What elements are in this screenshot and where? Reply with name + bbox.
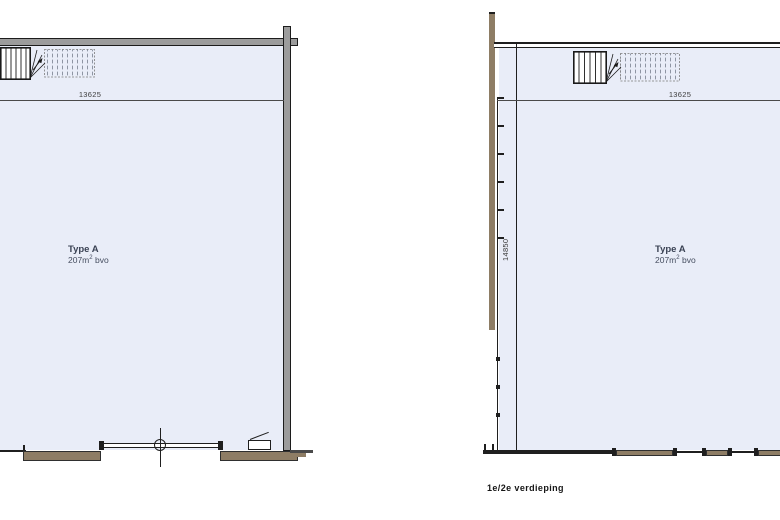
panel-joint-dot — [496, 357, 500, 361]
height-dimension: 14850 — [502, 228, 515, 272]
facade-panel — [706, 450, 728, 456]
unit-type-label: Type A 207m2 bvo — [68, 244, 109, 266]
unit-area-label: 207m2 bvo — [68, 255, 109, 265]
bottom-wall-segment — [483, 450, 613, 454]
left-wall-line — [497, 97, 498, 450]
unit-type-title: Type A — [68, 244, 109, 255]
height-dimension-line — [516, 43, 517, 450]
facade-panel — [23, 451, 101, 461]
unit-type-title: Type A — [655, 244, 696, 255]
top-wall — [0, 38, 298, 46]
staircase-icon — [573, 51, 681, 84]
panel-joint-dot — [496, 385, 500, 389]
left-facade-strip — [489, 14, 495, 330]
panel-joint-tick — [497, 125, 504, 127]
right-wall — [283, 26, 291, 451]
facade-panel — [758, 450, 780, 456]
facade-panel — [616, 450, 673, 456]
facade-panel — [220, 451, 298, 461]
panel-joint-tick — [497, 97, 504, 99]
panel-joint-tick — [497, 153, 504, 155]
panel-joint-tick — [497, 209, 504, 211]
bottom-wall-segment — [677, 451, 703, 453]
width-dimension: 13625 — [650, 91, 710, 99]
width-dimension-line — [497, 100, 780, 101]
floor-area — [0, 46, 284, 450]
panel-joint-dot — [496, 413, 500, 417]
floorplan-caption: 1e/2e verdieping — [487, 483, 564, 493]
entrance-door-leaf — [248, 440, 271, 450]
width-dimension: 13625 — [60, 91, 120, 99]
floor-area — [499, 47, 780, 450]
door-centerline-marker — [154, 439, 166, 451]
unit-type-label: Type A 207m2 bvo — [655, 244, 696, 266]
floorplan-canvas: 13625 Type A 207m2 bvo — [0, 0, 780, 520]
panel-joint-tick — [497, 181, 504, 183]
top-wall — [494, 42, 780, 48]
bottom-wall-extension — [290, 453, 306, 457]
unit-area-label: 207m2 bvo — [655, 255, 696, 265]
staircase-icon — [0, 47, 96, 80]
width-dimension-line — [0, 100, 284, 101]
door-jamb — [218, 441, 223, 450]
bottom-wall-segment — [732, 451, 754, 453]
